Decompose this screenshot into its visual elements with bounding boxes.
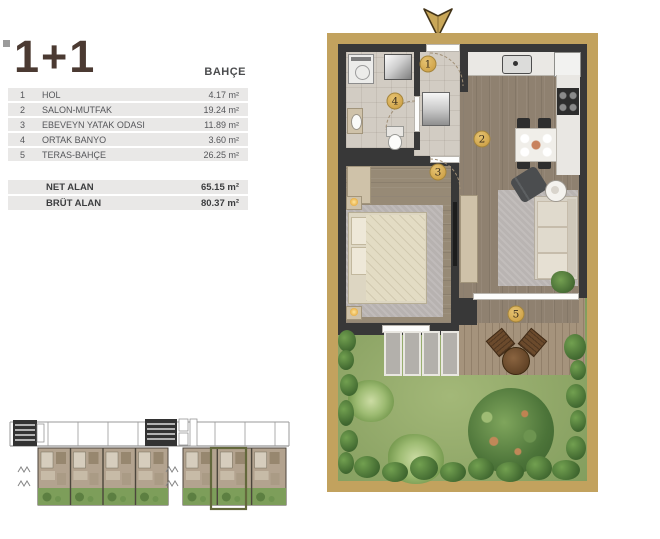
table-row: 3 EBEVEYN YATAK ODASI 11.89 m² bbox=[8, 118, 248, 131]
total-row: NET ALAN 65.15 m² bbox=[8, 180, 248, 194]
totals-table: NET ALAN 65.15 m² BRÜT ALAN 80.37 m² bbox=[8, 180, 248, 212]
stair-core bbox=[145, 419, 197, 446]
table-row: 1 HOL 4.17 m² bbox=[8, 88, 248, 101]
room-no: 3 bbox=[8, 120, 42, 130]
stair-core bbox=[13, 420, 44, 446]
floor-plan-sheet: 1+1 BAHÇE 1 HOL 4.17 m² 2 SALON-MUTFAK 1… bbox=[0, 0, 660, 539]
room-no: 1 bbox=[8, 90, 42, 100]
room-table: 1 HOL 4.17 m² 2 SALON-MUTFAK 19.24 m² 3 … bbox=[8, 88, 248, 163]
table-row: 4 ORTAK BANYO 3.60 m² bbox=[8, 133, 248, 146]
unit-type-title: 1+1 bbox=[14, 34, 96, 79]
room-no: 5 bbox=[8, 150, 42, 160]
room-name: EBEVEYN YATAK ODASI bbox=[42, 120, 177, 130]
room-marker-5: 5 bbox=[508, 306, 525, 323]
total-area: 65.15 m² bbox=[177, 182, 248, 193]
total-row: BRÜT ALAN 80.37 m² bbox=[8, 196, 248, 210]
room-marker-3: 3 bbox=[430, 164, 447, 181]
corner-mark bbox=[3, 40, 10, 47]
room-marker-2: 2 bbox=[474, 131, 491, 148]
room-marker-4: 4 bbox=[387, 93, 404, 110]
total-name: BRÜT ALAN bbox=[8, 198, 177, 209]
total-area: 80.37 m² bbox=[177, 198, 248, 209]
room-area: 26.25 m² bbox=[177, 150, 248, 160]
room-area: 19.24 m² bbox=[177, 105, 248, 115]
table-row: 2 SALON-MUTFAK 19.24 m² bbox=[8, 103, 248, 116]
room-area: 4.17 m² bbox=[177, 90, 248, 100]
room-marker-1: 1 bbox=[420, 56, 437, 73]
door-swing-arcs bbox=[338, 44, 587, 481]
room-area: 3.60 m² bbox=[177, 135, 248, 145]
room-name: TERAS-BAHÇE bbox=[42, 150, 177, 160]
key-plan bbox=[8, 415, 293, 527]
room-no: 4 bbox=[8, 135, 42, 145]
unit-category-label: BAHÇE bbox=[150, 66, 246, 78]
room-name: HOL bbox=[42, 90, 177, 100]
total-name: NET ALAN bbox=[8, 182, 177, 193]
room-area: 11.89 m² bbox=[177, 120, 248, 130]
table-row: 5 TERAS-BAHÇE 26.25 m² bbox=[8, 148, 248, 161]
room-no: 2 bbox=[8, 105, 42, 115]
room-name: SALON-MUTFAK bbox=[42, 105, 177, 115]
room-name: ORTAK BANYO bbox=[42, 135, 177, 145]
floor-plan: 1 2 3 4 5 bbox=[327, 33, 598, 492]
